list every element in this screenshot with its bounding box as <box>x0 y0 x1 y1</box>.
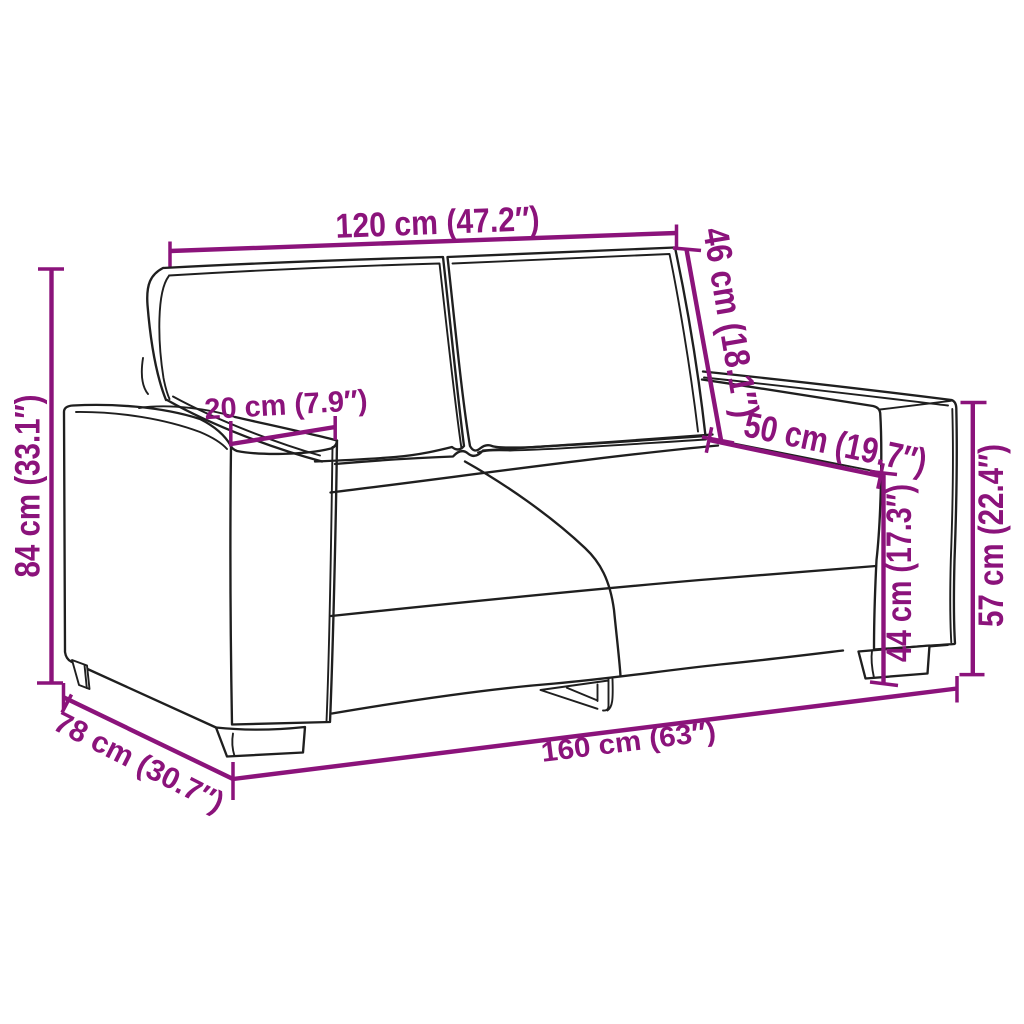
svg-text:44 cm (17.3″): 44 cm (17.3″) <box>879 484 918 662</box>
svg-text:120 cm (47.2″): 120 cm (47.2″) <box>335 199 540 245</box>
svg-text:57 cm (22.4″): 57 cm (22.4″) <box>972 444 1011 627</box>
svg-text:84 cm (33.1″): 84 cm (33.1″) <box>8 394 47 577</box>
